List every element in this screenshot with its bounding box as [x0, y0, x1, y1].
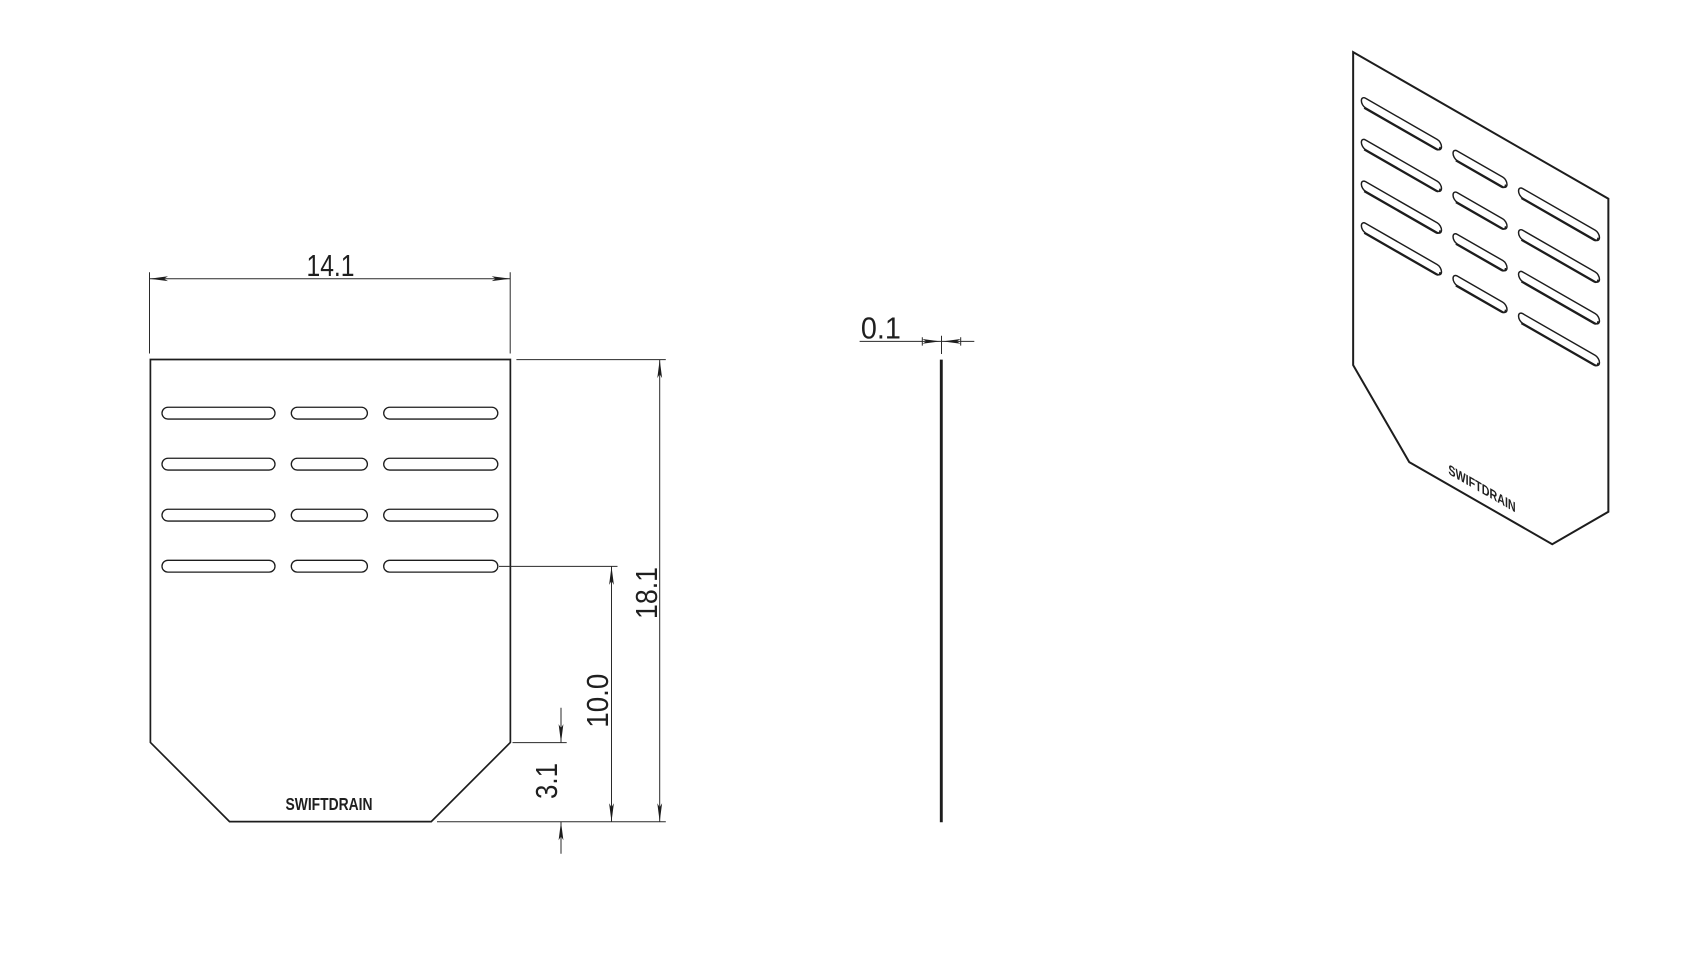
svg-text:14.1: 14.1: [307, 248, 355, 283]
svg-text:3.1: 3.1: [529, 763, 564, 799]
svg-text:0.1: 0.1: [861, 310, 901, 345]
svg-text:SWIFTDRAIN: SWIFTDRAIN: [286, 794, 373, 814]
svg-text:10.0: 10.0: [580, 674, 615, 728]
svg-text:18.1: 18.1: [629, 567, 664, 619]
